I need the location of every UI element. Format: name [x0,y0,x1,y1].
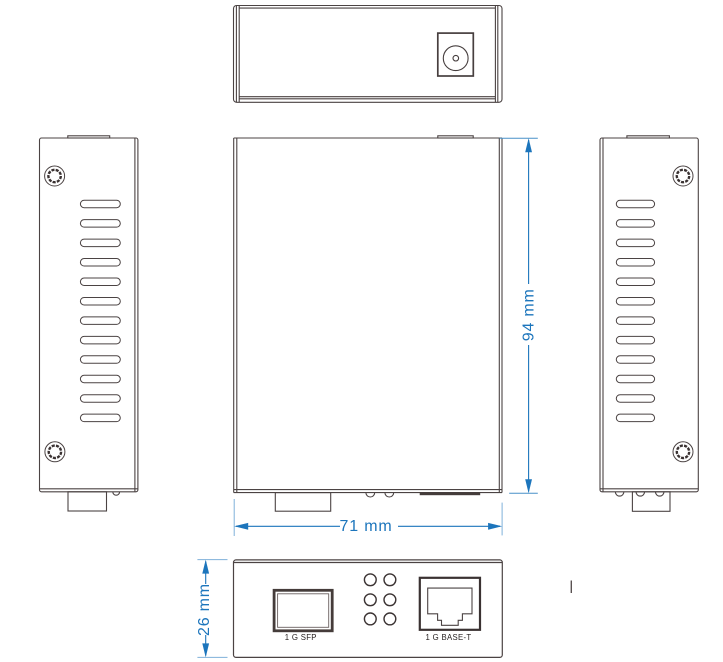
svg-text:1 G BASE-T: 1 G BASE-T [426,633,472,642]
svg-text:26 mm: 26 mm [196,583,213,636]
svg-text:94 mm: 94 mm [521,288,538,341]
svg-text:71 mm: 71 mm [340,518,393,535]
svg-text:1 G SFP: 1 G SFP [285,633,317,642]
